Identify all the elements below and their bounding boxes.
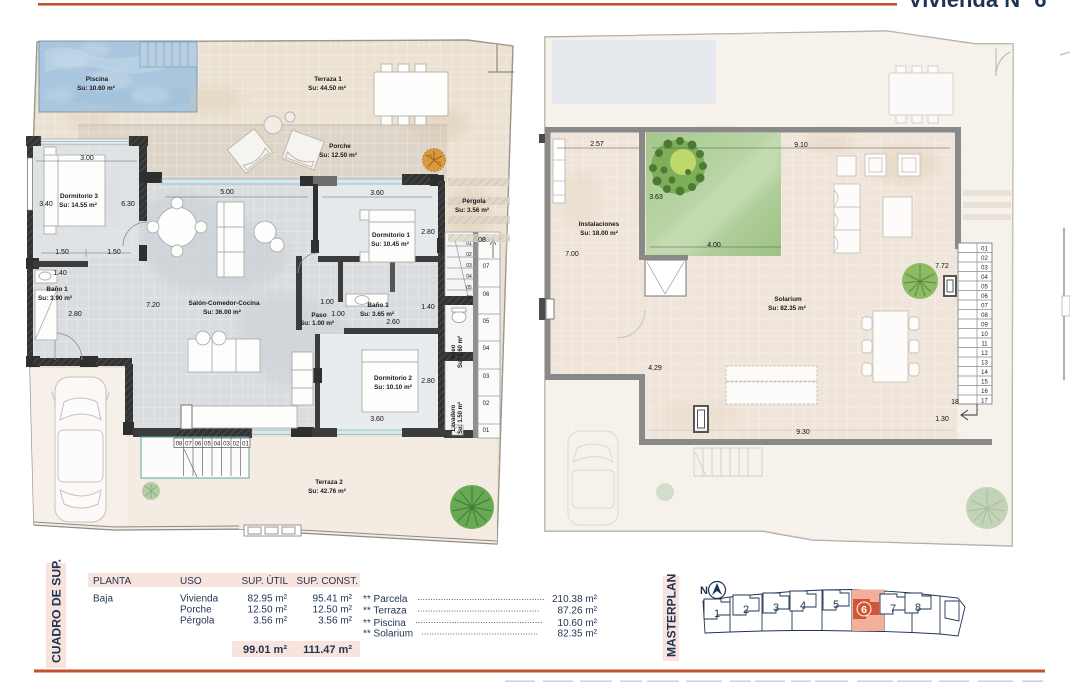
svg-text:1.50: 1.50 — [55, 249, 69, 256]
svg-text:01: 01 — [483, 428, 490, 434]
svg-text:2.57: 2.57 — [590, 141, 604, 148]
svg-text:Su: 14.55 m²: Su: 14.55 m² — [59, 202, 97, 209]
svg-text:4: 4 — [800, 600, 806, 612]
svg-text:Baja: Baja — [93, 594, 113, 605]
svg-text:15: 15 — [981, 380, 988, 386]
svg-text:07: 07 — [483, 264, 490, 270]
svg-text:Porche: Porche — [180, 605, 212, 616]
svg-text:10: 10 — [981, 332, 988, 338]
svg-text:** Solarium: ** Solarium — [363, 629, 413, 640]
svg-text:Su: 82.35 m²: Su: 82.35 m² — [768, 305, 806, 312]
svg-text:** Terraza: ** Terraza — [363, 606, 407, 617]
svg-text:Baño 1: Baño 1 — [367, 302, 389, 309]
svg-text:02: 02 — [981, 256, 988, 262]
svg-text:14: 14 — [981, 370, 988, 376]
svg-text:06: 06 — [466, 295, 472, 301]
svg-text:** Piscina: ** Piscina — [363, 618, 406, 629]
svg-text:Pérgola: Pérgola — [462, 198, 486, 205]
svg-text:Porche: Porche — [329, 143, 351, 150]
svg-text:3.60: 3.60 — [370, 416, 384, 423]
svg-text:Baño 1: Baño 1 — [46, 286, 68, 293]
svg-text:Su: 1.00 m²: Su: 1.00 m² — [300, 320, 334, 327]
svg-text:1.40: 1.40 — [421, 304, 435, 311]
svg-text:Aseo: Aseo — [451, 344, 457, 359]
svg-text:12.50 m²: 12.50 m² — [248, 605, 288, 616]
svg-text:08: 08 — [176, 442, 183, 448]
svg-text:4.29: 4.29 — [648, 365, 662, 372]
svg-text:Su: 10.10 m²: Su: 10.10 m² — [374, 384, 412, 391]
svg-text:2.60: 2.60 — [386, 319, 400, 326]
svg-text:SUP. ÚTIL: SUP. ÚTIL — [242, 574, 289, 587]
svg-text:Dormitorio 1: Dormitorio 1 — [372, 232, 410, 239]
svg-text:Piscina: Piscina — [86, 76, 109, 83]
svg-text:2.80: 2.80 — [421, 378, 435, 385]
svg-text:Su: 44.50 m²: Su: 44.50 m² — [308, 85, 346, 92]
svg-text:03: 03 — [223, 442, 230, 448]
svg-text:SUP. CONST.: SUP. CONST. — [297, 576, 359, 587]
svg-text:Terraza 1: Terraza 1 — [314, 76, 342, 83]
svg-text:5: 5 — [833, 599, 839, 611]
svg-text:Su: 42.76 m²: Su: 42.76 m² — [308, 488, 346, 495]
svg-text:7.00: 7.00 — [565, 251, 579, 258]
svg-text:Dormitorio 3: Dormitorio 3 — [60, 193, 98, 200]
svg-text:N: N — [700, 585, 708, 597]
svg-text:Su: 10.60 m²: Su: 10.60 m² — [77, 85, 115, 92]
svg-text:Su: 10.45 m²: Su: 10.45 m² — [371, 241, 409, 248]
svg-text:111.47 m²: 111.47 m² — [303, 644, 352, 656]
svg-text:** Parcela: ** Parcela — [363, 594, 408, 605]
svg-text:Su: 1.60 m²: Su: 1.60 m² — [457, 336, 464, 368]
svg-text:2.80: 2.80 — [421, 229, 435, 236]
svg-text:Pérgola: Pérgola — [180, 616, 215, 627]
svg-text:Su: 3.90 m²: Su: 3.90 m² — [38, 295, 72, 302]
svg-text:7: 7 — [890, 603, 896, 615]
svg-text:12: 12 — [981, 351, 988, 357]
svg-text:Vivienda: Vivienda — [180, 594, 219, 605]
svg-text:5.00: 5.00 — [220, 189, 234, 196]
svg-text:12.50 m²: 12.50 m² — [313, 605, 353, 616]
svg-text:02: 02 — [466, 252, 472, 258]
svg-text:05: 05 — [466, 285, 472, 291]
svg-text:05: 05 — [981, 285, 988, 291]
svg-text:06: 06 — [483, 292, 490, 298]
svg-text:Su: 3.56 m²: Su: 3.56 m² — [455, 207, 489, 214]
svg-text:06: 06 — [195, 442, 202, 448]
svg-text:Salón-Comedor-Cocina: Salón-Comedor-Cocina — [188, 300, 259, 307]
svg-text:Paso: Paso — [311, 312, 326, 319]
svg-text:Su: 36.00 m²: Su: 36.00 m² — [203, 309, 241, 316]
svg-text:04: 04 — [981, 275, 988, 281]
svg-text:Instalaciones: Instalaciones — [579, 221, 620, 228]
svg-text:2.80: 2.80 — [68, 311, 82, 318]
svg-text:13: 13 — [981, 361, 988, 367]
svg-text:Su: 18.00 m²: Su: 18.00 m² — [580, 230, 618, 237]
svg-text:MASTERPLAN: MASTERPLAN — [665, 574, 679, 657]
svg-text:Lavadero: Lavadero — [451, 404, 457, 431]
svg-text:3.60: 3.60 — [370, 190, 384, 197]
svg-text:PLANTA: PLANTA — [93, 576, 131, 587]
svg-text:06: 06 — [981, 294, 988, 300]
svg-text:05: 05 — [483, 319, 490, 325]
svg-text:8: 8 — [915, 602, 921, 614]
svg-text:03: 03 — [483, 374, 490, 380]
svg-text:Su: 3.65 m²: Su: 3.65 m² — [360, 311, 394, 318]
svg-text:6.30: 6.30 — [121, 201, 135, 208]
svg-text:10.60 m²: 10.60 m² — [558, 618, 598, 629]
svg-text:Su: 1.50 m²: Su: 1.50 m² — [457, 402, 464, 434]
svg-text:4.00: 4.00 — [707, 242, 721, 249]
svg-text:02: 02 — [233, 442, 240, 448]
svg-text:7.72: 7.72 — [935, 263, 949, 270]
svg-text:01: 01 — [242, 442, 249, 448]
svg-text:04: 04 — [466, 274, 472, 280]
svg-text:04: 04 — [483, 346, 490, 352]
svg-text:CUADRO DE SUP.: CUADRO DE SUP. — [50, 559, 64, 663]
svg-text:6: 6 — [861, 604, 867, 616]
svg-text:05: 05 — [204, 442, 211, 448]
svg-text:02: 02 — [483, 401, 490, 407]
svg-text:04: 04 — [214, 442, 221, 448]
svg-text:1: 1 — [714, 608, 720, 620]
svg-text:1.50: 1.50 — [107, 249, 121, 256]
svg-text:2: 2 — [743, 604, 749, 616]
svg-text:1.30: 1.30 — [935, 416, 949, 423]
svg-text:3.63: 3.63 — [649, 194, 663, 201]
svg-text:Dormitorio 2: Dormitorio 2 — [374, 375, 412, 382]
svg-text:82.95 m²: 82.95 m² — [248, 594, 288, 605]
svg-text:Terraza 2: Terraza 2 — [315, 479, 343, 486]
svg-text:07: 07 — [185, 442, 192, 448]
svg-text:03: 03 — [466, 263, 472, 269]
svg-text:16: 16 — [981, 389, 988, 395]
svg-text:87.26 m²: 87.26 m² — [558, 606, 598, 617]
svg-text:Su: 12.50 m²: Su: 12.50 m² — [319, 152, 357, 159]
svg-text:08: 08 — [478, 237, 486, 244]
svg-text:03: 03 — [981, 266, 988, 272]
svg-text:1.40: 1.40 — [53, 270, 67, 277]
svg-text:99.01 m²: 99.01 m² — [243, 644, 287, 656]
svg-text:11: 11 — [981, 342, 988, 348]
svg-text:7.20: 7.20 — [146, 302, 160, 309]
svg-text:USO: USO — [180, 576, 202, 587]
svg-text:18: 18 — [951, 399, 959, 406]
svg-text:1.00: 1.00 — [331, 311, 345, 318]
svg-text:3: 3 — [773, 602, 779, 614]
svg-text:210.38 m²: 210.38 m² — [552, 594, 598, 605]
svg-text:95.41 m²: 95.41 m² — [313, 594, 353, 605]
svg-text:3.56 m²: 3.56 m² — [318, 616, 353, 627]
svg-text:3.40: 3.40 — [39, 201, 53, 208]
svg-text:82.35 m²: 82.35 m² — [558, 629, 598, 640]
svg-text:01: 01 — [981, 247, 988, 253]
svg-text:08: 08 — [981, 313, 988, 319]
svg-text:1.00: 1.00 — [320, 299, 334, 306]
svg-text:17: 17 — [981, 399, 988, 405]
svg-text:Vivienda Nº 6: Vivienda Nº 6 — [908, 0, 1046, 12]
svg-text:07: 07 — [981, 304, 988, 310]
svg-text:3.56 m²: 3.56 m² — [253, 616, 288, 627]
svg-text:09: 09 — [981, 323, 988, 329]
svg-text:Solarium: Solarium — [774, 296, 802, 303]
